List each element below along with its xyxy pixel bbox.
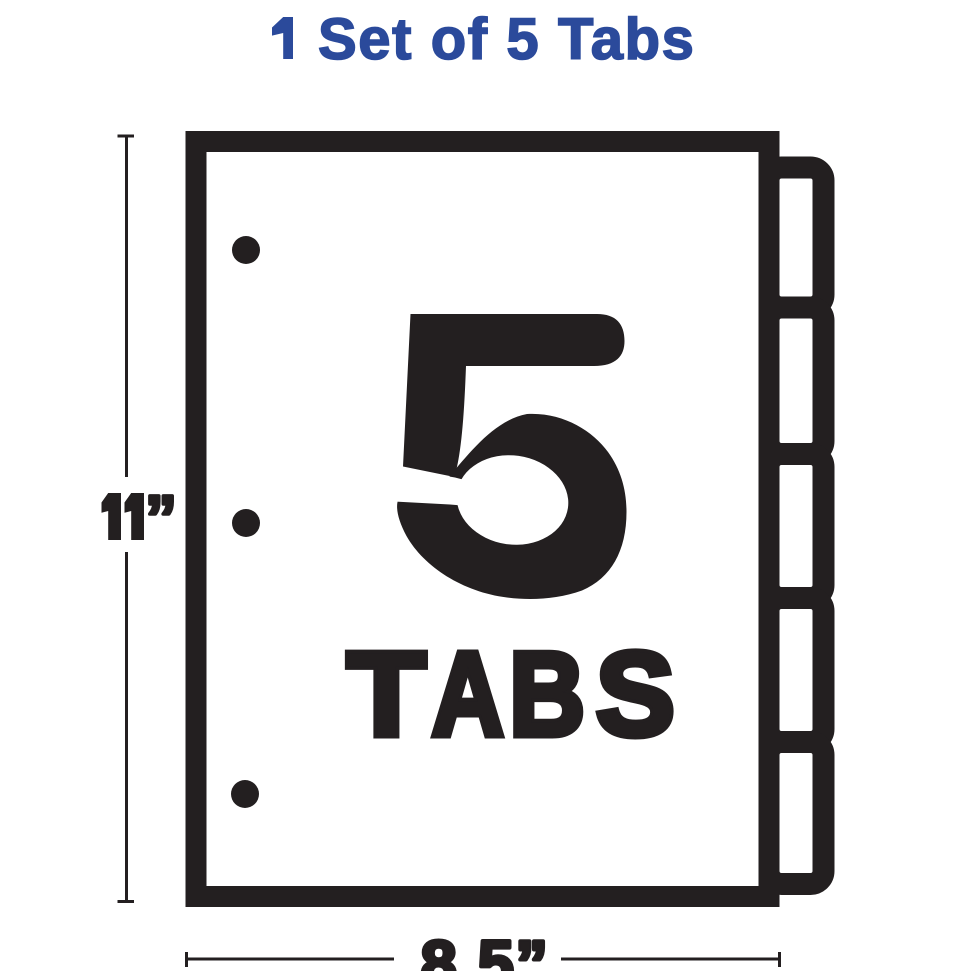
svg-text:B: B (509, 627, 585, 761)
svg-text:Set of 5 Tabs: Set of 5 Tabs (318, 7, 695, 72)
svg-text:T: T (347, 628, 425, 761)
svg-text:A: A (432, 629, 504, 761)
svg-text:”: ” (145, 482, 177, 554)
svg-text:S: S (596, 629, 675, 762)
svg-text:8.5”: 8.5” (421, 927, 550, 971)
